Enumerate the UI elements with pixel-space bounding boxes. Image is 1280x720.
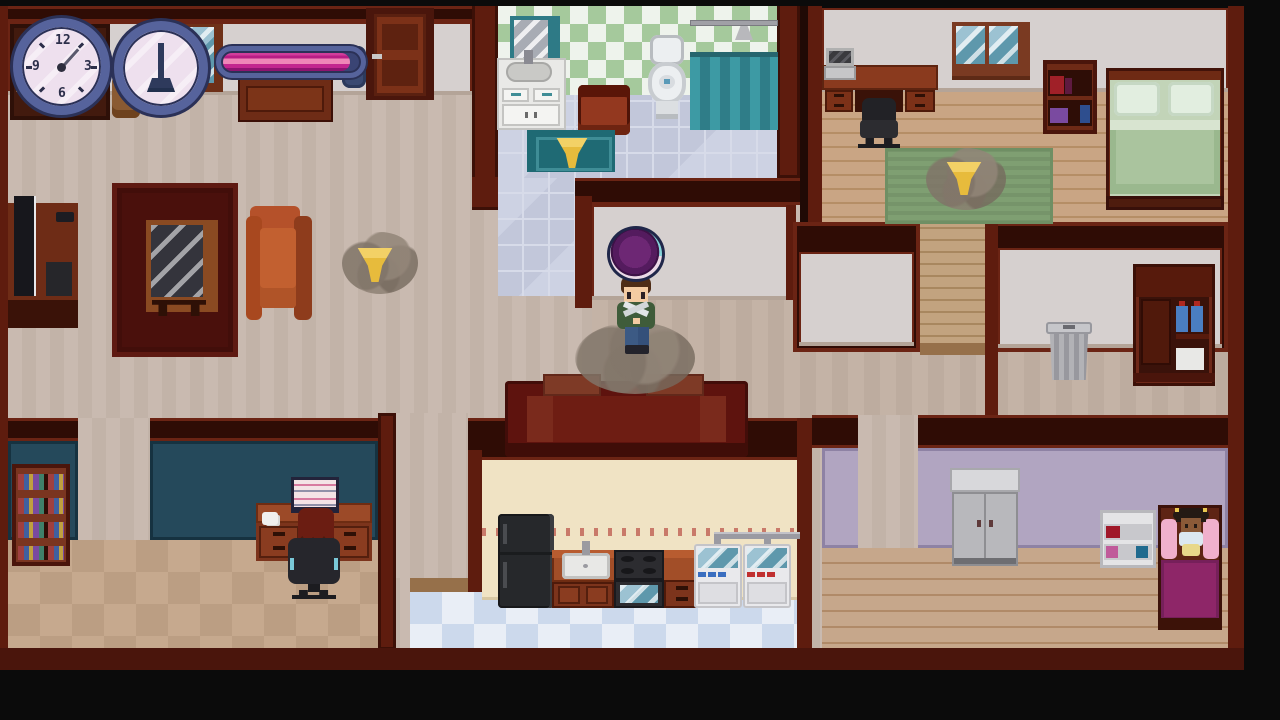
clock-numeral-9: 9 [32, 60, 40, 73]
couch-seat [527, 396, 726, 442]
book-row [18, 498, 64, 514]
washer-window [747, 548, 787, 568]
clock-tick [39, 86, 45, 92]
washer-button [718, 572, 726, 577]
sheet-fold [1110, 120, 1220, 130]
drain [583, 564, 588, 568]
computer-monitor[interactable] [291, 477, 339, 513]
chair-seat [860, 120, 898, 138]
faucet [524, 50, 533, 64]
hud-wall-clock: 12 3 6 9 [13, 18, 110, 115]
bedroom-bookshelf[interactable] [1043, 60, 1097, 134]
cabinet-shelf [1176, 334, 1209, 339]
teal-item [1136, 546, 1148, 558]
desk-drawers [905, 90, 935, 112]
right-black [1244, 0, 1280, 720]
drawer-handle [344, 546, 356, 550]
broom-icon-head [147, 78, 175, 92]
wall-block-1-face [799, 252, 914, 346]
burner [621, 556, 634, 562]
clock-tick [39, 42, 45, 48]
blue-bottle [1191, 306, 1203, 332]
washer-button [698, 572, 706, 577]
shower-rail [690, 20, 778, 26]
wardrobe-handle [989, 520, 993, 527]
burner [621, 568, 634, 574]
burner [643, 568, 656, 574]
drawer-handle [511, 93, 521, 96]
trash-lid [1046, 322, 1092, 334]
game-screen: 12 3 6 9 [0, 0, 1280, 720]
drawer-handle [273, 546, 285, 550]
toilet-lid [650, 35, 684, 65]
sink-vanity[interactable] [497, 58, 566, 130]
desk-drawers [825, 90, 853, 112]
bottom-band [0, 648, 1244, 670]
progress-fill [223, 53, 350, 71]
fridge-handle [503, 562, 507, 588]
washer-panel [747, 582, 787, 604]
bottle-cap [1194, 301, 1200, 306]
red-item [1106, 526, 1120, 538]
faucet [582, 541, 590, 555]
drawer-handle [273, 532, 285, 536]
vanity-doors [502, 104, 560, 126]
eye [641, 292, 645, 299]
bathroom-south-wall [575, 178, 800, 205]
laptop[interactable] [826, 48, 854, 80]
white-box [1176, 348, 1204, 370]
bedroom-office-chair[interactable] [858, 98, 900, 150]
shelf-row [1104, 544, 1152, 560]
book [1050, 108, 1068, 123]
bathroom-east-wall [777, 0, 800, 178]
footboard [1106, 196, 1224, 210]
double-bed[interactable] [1106, 68, 1224, 210]
hud-progress-bar [216, 46, 366, 78]
cabinet-base [1133, 373, 1215, 382]
glass-table[interactable] [146, 220, 218, 312]
vanity-drawer [533, 88, 560, 102]
broom-icon [158, 43, 164, 79]
eye [627, 292, 631, 299]
bedroom-west-wall [808, 0, 822, 225]
shelf-row [1104, 524, 1152, 540]
entry-door[interactable] [366, 8, 434, 100]
kitchen-threshold [410, 578, 468, 592]
pillow [1114, 82, 1160, 116]
pink-pillow [1161, 519, 1177, 559]
window-pane [956, 26, 985, 64]
toilet[interactable] [646, 35, 688, 123]
top-black [0, 0, 1280, 6]
washing-machine-2[interactable] [743, 544, 791, 608]
door-inset [382, 24, 418, 50]
door-panel [374, 14, 426, 96]
drawer-handle [344, 532, 356, 536]
player[interactable] [611, 274, 661, 360]
shelf-row [1048, 70, 1092, 96]
washing-machine-1[interactable] [694, 544, 742, 608]
chair-legs [858, 138, 900, 148]
chair-post [308, 584, 320, 592]
corridor-threshold [920, 343, 985, 355]
sink-basin [506, 62, 552, 82]
clock-tick [78, 42, 84, 48]
cabinet-door [1141, 299, 1171, 365]
kids-doorway [858, 415, 918, 548]
armchair-arm [294, 216, 312, 320]
laptop-screen [829, 51, 851, 63]
drawer-handle [676, 597, 688, 601]
book [1050, 76, 1064, 94]
bedroom-window [952, 22, 1030, 76]
book-row [18, 546, 64, 560]
washer-button [747, 572, 755, 577]
washer-button [767, 572, 775, 577]
drawer-handle [915, 104, 925, 107]
door-inset [382, 60, 418, 86]
kitchen-doorway-corridor [396, 413, 468, 578]
bottom-black [0, 670, 1280, 720]
couch-arm-pad [700, 396, 726, 442]
magic-bubble[interactable] [607, 226, 665, 282]
cabinet-top [1136, 267, 1212, 297]
washer-button [757, 572, 765, 577]
lower-cabinet[interactable] [552, 582, 614, 608]
office-chair[interactable] [288, 538, 340, 584]
shower-curtain[interactable] [690, 52, 778, 130]
right-frame [1228, 0, 1244, 670]
clock-numeral-12: 12 [55, 34, 71, 47]
drawer-handle [834, 94, 844, 97]
drawer-handle [834, 104, 844, 107]
kids-shelf[interactable] [1100, 510, 1156, 568]
left-frame [0, 6, 8, 650]
laptop-screen-frame [826, 48, 854, 66]
oven-window [620, 585, 658, 603]
chair-glint [334, 558, 338, 570]
wardrobe-handle [977, 520, 981, 527]
wardrobe-top [950, 468, 1020, 492]
eye [1194, 524, 1197, 528]
kitchen-sink[interactable] [562, 553, 610, 579]
npc-child[interactable] [1176, 508, 1206, 560]
cooktop [614, 550, 664, 580]
door-handle [372, 54, 382, 59]
tv[interactable] [14, 196, 34, 296]
monitor-screen [294, 480, 336, 507]
wardrobe-door-split [984, 494, 986, 558]
stove-oven[interactable] [614, 550, 664, 608]
washer-panel [698, 582, 738, 604]
fridge-handle [503, 524, 507, 544]
supply-cabinet[interactable] [1133, 264, 1215, 386]
book-row [18, 522, 64, 538]
water-glint [664, 79, 670, 84]
trash-handle [1063, 325, 1075, 329]
shelf-row [1048, 100, 1092, 126]
book-row [18, 474, 64, 490]
player-shoes [625, 345, 649, 354]
door-knob [534, 112, 537, 118]
hair-tie [1175, 508, 1179, 512]
drawer-handle [676, 586, 688, 590]
eye [1185, 524, 1188, 528]
washer-window [698, 548, 738, 568]
cabinet-door [586, 586, 608, 604]
drawer-handle [915, 94, 925, 97]
wardrobe[interactable] [952, 492, 1018, 566]
toilet-base [656, 101, 678, 119]
storage-west-wall [985, 222, 998, 427]
coffee-cup[interactable] [262, 512, 278, 525]
washer-button [708, 572, 716, 577]
laundry-pipe [714, 532, 800, 539]
bottle-cap [1179, 301, 1185, 306]
hair-tie [1203, 508, 1207, 512]
chair-glint [290, 558, 294, 570]
trash-can[interactable] [1046, 322, 1092, 380]
dresser-doors [246, 86, 324, 112]
clock-numeral-6: 6 [58, 87, 66, 100]
oven [614, 580, 664, 608]
laundry-hamper[interactable] [578, 85, 630, 135]
hall-west-wall [575, 196, 592, 308]
bedroom-door-corridor [920, 205, 985, 350]
toilet-bowl [648, 62, 686, 104]
child-face [1181, 518, 1201, 532]
book [1080, 105, 1090, 123]
hand [633, 318, 640, 324]
kids-footboard [1158, 618, 1222, 630]
child-blanket-patch [1182, 544, 1200, 556]
office-east-wall [378, 413, 396, 650]
remote[interactable] [56, 212, 74, 222]
player-jeans [625, 327, 649, 347]
clock-center-dot [57, 63, 66, 72]
kitchen-west-wall [468, 450, 482, 592]
toilet-water [659, 75, 675, 89]
book [1065, 78, 1072, 94]
clock-tick [26, 66, 32, 69]
kids-blanket [1161, 560, 1219, 620]
door-knob [525, 112, 528, 118]
orange-armchair[interactable] [246, 206, 312, 322]
blue-bottle [1176, 306, 1188, 332]
couch-arm-pad [527, 396, 553, 442]
blanket [1110, 130, 1220, 194]
bathroom-corridor-tiles [498, 178, 578, 296]
clock-tick [78, 86, 84, 92]
office-doorway [78, 418, 150, 540]
clock-tick [91, 66, 97, 69]
office-bookshelf[interactable] [12, 464, 70, 566]
armchair-seat [260, 228, 296, 308]
glass-table-top [151, 225, 203, 297]
cabinet-door [558, 586, 580, 604]
game-console[interactable] [46, 262, 72, 296]
burner [643, 556, 656, 562]
player-jacket [617, 302, 655, 329]
window-pane [989, 26, 1018, 64]
office-north-band [0, 418, 396, 441]
vanity-drawer [502, 88, 529, 102]
pink-item [1106, 546, 1118, 558]
hud-chore-timer [114, 21, 208, 115]
drawer-handle [542, 93, 552, 96]
trash-body [1049, 334, 1089, 380]
pillow [1168, 82, 1214, 116]
fridge[interactable] [498, 514, 554, 608]
laptop-keyboard [824, 66, 856, 80]
fridge-door-split [500, 552, 552, 555]
